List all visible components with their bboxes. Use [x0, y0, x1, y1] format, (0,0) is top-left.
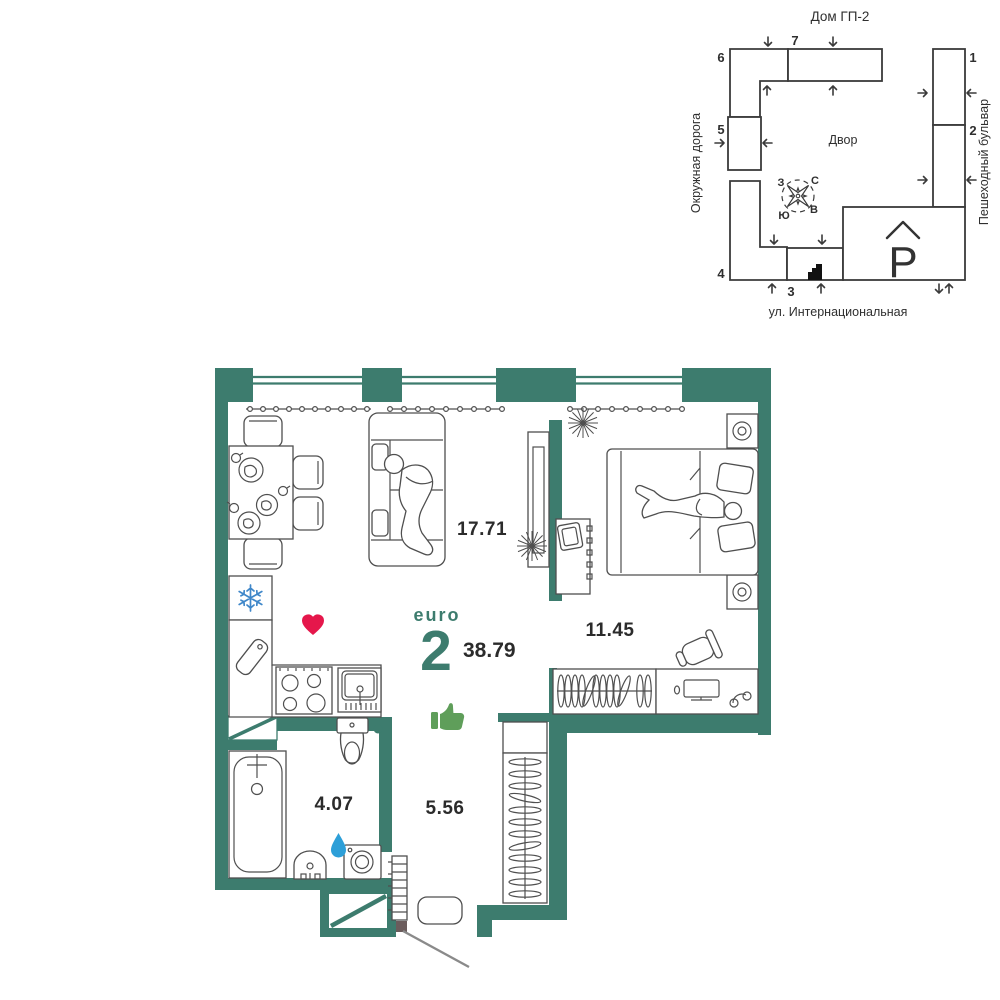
bathtub — [229, 751, 286, 878]
street-right-label: Пешеходный бульвар — [977, 99, 991, 225]
building-6-shape — [730, 49, 788, 117]
door-threshold — [396, 921, 407, 932]
sofa — [369, 413, 445, 566]
desk — [656, 669, 758, 714]
bathroom-door-icon — [228, 716, 277, 740]
plant-icon — [517, 531, 547, 561]
area-bathroom: 4.07 — [315, 794, 354, 815]
bed — [607, 449, 758, 575]
building-5-label: 5 — [717, 122, 724, 137]
area-bedroom: 11.45 — [586, 620, 635, 641]
compass-icon: З С Ю В — [778, 175, 819, 222]
dining-table — [227, 416, 323, 569]
street-left-label: Окружная дорога — [689, 113, 703, 213]
plumbing-dot — [374, 725, 383, 734]
curtain-rails — [246, 407, 684, 412]
compass-north: С — [811, 175, 819, 187]
bedroom — [553, 408, 758, 714]
site-map-buildings — [728, 49, 965, 280]
compass-south: Ю — [778, 210, 789, 222]
entrance-vestibule — [329, 894, 387, 928]
rooms-count: 2 — [420, 619, 452, 683]
wardrobe — [553, 669, 656, 714]
building-7-shape — [788, 49, 882, 81]
building-4-label: 4 — [717, 266, 725, 281]
plan-summary: euro 2 38.79 — [413, 605, 515, 683]
page: Дом ГП-2 6 7 5 1 2 4 3 Двор P — [0, 0, 1000, 1000]
dresser — [556, 519, 592, 594]
desk-chair — [672, 629, 723, 674]
building-4-shape — [730, 181, 787, 280]
stove — [276, 667, 332, 714]
heart-icon — [302, 614, 324, 635]
window-icons — [253, 377, 682, 384]
building-1-shape — [933, 49, 965, 125]
nightstand-top — [727, 414, 758, 448]
compass-east: В — [810, 204, 818, 216]
total-area: 38.79 — [463, 639, 516, 662]
nightstand-bottom — [727, 575, 758, 609]
thumbs-up-icon — [431, 703, 464, 730]
area-hallway: 5.56 — [426, 798, 465, 819]
building-2-shape — [933, 125, 965, 207]
street-bottom-label: ул. Интернациональная — [769, 305, 908, 319]
courtyard-label: Двор — [829, 133, 858, 147]
coat-closet — [503, 722, 547, 903]
area-living-kitchen: 17.71 — [457, 519, 507, 540]
plant-icon-bedroom — [568, 408, 598, 438]
bathroom-sink — [294, 851, 326, 879]
building-1-label: 1 — [969, 50, 976, 65]
hallway — [388, 722, 547, 967]
site-map: Дом ГП-2 6 7 5 1 2 4 3 Двор P — [680, 0, 1000, 330]
building-7-label: 7 — [791, 33, 798, 48]
site-map-title: Дом ГП-2 — [811, 9, 870, 24]
floor-plan: 17.71 11.45 4.07 5.56 euro 2 38.79 — [210, 360, 790, 985]
washing-machine — [344, 845, 381, 879]
entrance-door-swing — [403, 931, 469, 967]
building-5-shape — [728, 117, 761, 170]
bench — [418, 897, 462, 924]
parking-letter: P — [888, 238, 917, 287]
toilet — [337, 718, 368, 764]
building-3-label: 3 — [787, 284, 794, 299]
kitchen-sink — [338, 668, 381, 712]
building-6-label: 6 — [717, 50, 724, 65]
compass-west: З — [778, 177, 785, 189]
water-drop-icon — [331, 833, 346, 858]
building-2-label: 2 — [969, 123, 976, 138]
kitchen — [229, 576, 381, 717]
